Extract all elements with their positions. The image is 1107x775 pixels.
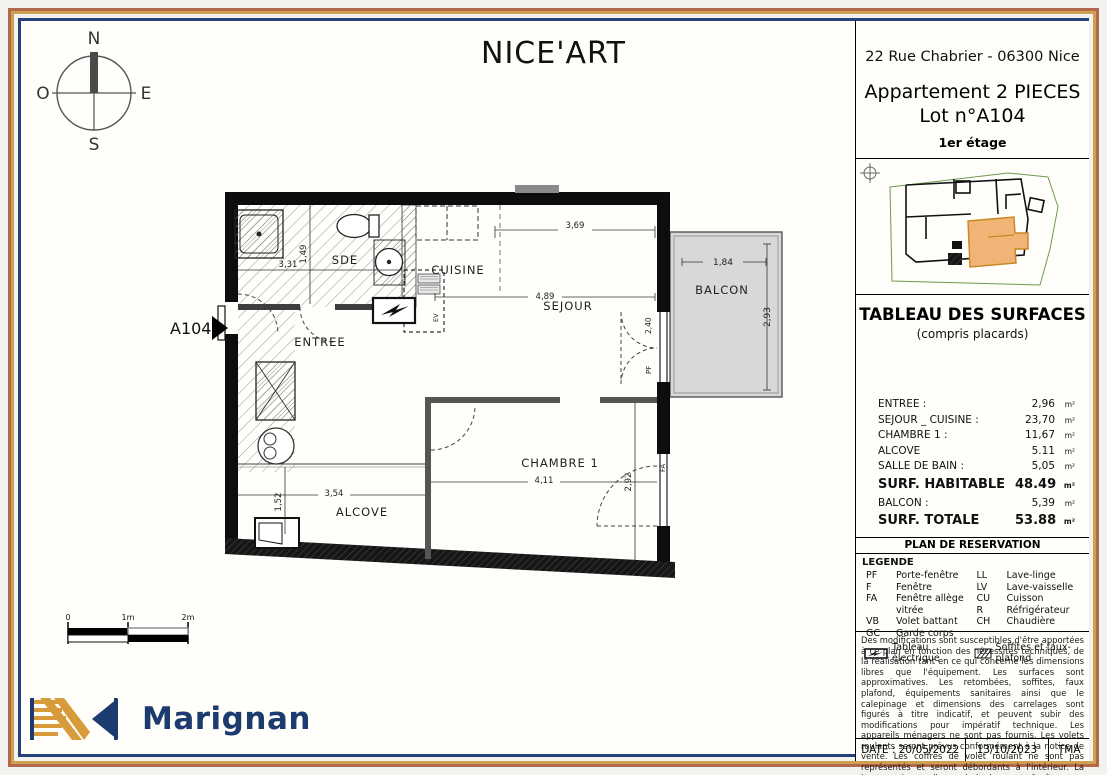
surface-value: 2,96 — [1015, 397, 1055, 413]
surface-value: 5,05 — [1015, 459, 1055, 475]
alcove-niche — [255, 518, 299, 548]
marignan-logo-icon — [30, 690, 130, 748]
legend-abbr: VB — [862, 616, 896, 628]
surface-unit: m² — [1055, 476, 1075, 496]
floor-level: 1er étage — [856, 135, 1089, 150]
electrical-panel-icon — [373, 298, 415, 323]
room-entree-label: ENTREE — [294, 335, 345, 349]
legend-abbr: F — [862, 582, 896, 594]
footer-code: TMA — [1049, 739, 1089, 761]
keyplan-core — [948, 241, 962, 265]
surface-value: 23,70 — [1015, 413, 1055, 429]
legend-abbr: LV — [973, 582, 1007, 594]
dim-sejour-top: 3,69 — [566, 221, 585, 231]
surface-label: BALCON : — [878, 496, 1015, 512]
surface-label: SALLE DE BAIN : — [878, 459, 1015, 475]
surfaces-rows: ENTREE : 2,96 m² SEJOUR _ CUISINE : 23,7… — [878, 397, 1075, 532]
surface-row: CHAMBRE 1 : 11,67 m² — [878, 428, 1075, 444]
tag-fa: FA — [659, 464, 667, 472]
entree-closet — [256, 362, 295, 464]
surface-value: 53.88 — [1015, 511, 1055, 531]
scale-bar: 0 1m 2m — [58, 610, 208, 656]
brand-name: Marignan — [142, 701, 311, 737]
surface-unit: m² — [1055, 397, 1075, 413]
surface-label: SURF. TOTALE — [878, 511, 1015, 531]
legend-grid: PFPorte-fenêtre FFenêtre FAFenêtre allèg… — [862, 570, 1083, 639]
floor-plan: 1,84 BALCON 2,93 PF 2,40 — [170, 182, 810, 602]
legend-abbr: LL — [973, 570, 1007, 582]
disclaimer-text: Des modifications sont susceptibles d'êt… — [856, 632, 1089, 739]
footer-date: DATE : 20/05/2022 — [856, 739, 966, 761]
legend-abbr: CU — [973, 593, 1007, 605]
surface-row: ALCOVE 5.11 m² — [878, 444, 1075, 460]
dim-chambre-depth: 2,92 — [624, 473, 634, 492]
surface-unit: m² — [1055, 496, 1075, 512]
balcony: 1,84 BALCON 2,93 — [670, 232, 782, 397]
legend-abbr: FA — [862, 593, 896, 616]
project-address: 22 Rue Chabrier - 06300 Nice — [856, 49, 1089, 65]
room-sde-label: SDE — [332, 253, 358, 267]
window-fa-chambre: FA — [658, 454, 669, 526]
dim-balcon-depth: 2,93 — [763, 307, 773, 327]
surface-row-totale: SURF. TOTALE 53.88 m² — [878, 511, 1075, 532]
washbasin — [374, 240, 405, 285]
reservation-bar: PLAN DE RESERVATION — [856, 538, 1089, 554]
surface-unit: m² — [1055, 512, 1075, 532]
surface-row: ENTREE : 2,96 m² — [878, 397, 1075, 413]
scale-0-label: 0 — [65, 613, 70, 622]
address-panel: 22 Rue Chabrier - 06300 Nice Appartement… — [856, 21, 1089, 159]
unit-entrance: A104 — [170, 306, 228, 340]
surfaces-subtitle: (compris placards) — [856, 327, 1089, 341]
legend-abbr: R — [973, 605, 1007, 617]
legend-panel: LEGENDE PFPorte-fenêtre FFenêtre FAFenêt… — [856, 554, 1089, 632]
plan-sheet: N S E O NICE'ART 1,84 — [0, 0, 1107, 775]
legend-abbr: PF — [862, 570, 896, 582]
room-balcon-label: BALCON — [695, 283, 749, 297]
surface-row: BALCON : 5,39 m² — [878, 496, 1075, 512]
room-cuisine-label: CUISINE — [431, 263, 484, 277]
dim-alcove-width: 3,54 — [325, 489, 344, 499]
toilet — [337, 215, 379, 238]
surface-value: 11,67 — [1015, 428, 1055, 444]
door-swings — [238, 294, 657, 526]
apartment-type: Appartement 2 PIECES — [856, 81, 1089, 103]
legend-name: Volet battant — [896, 616, 973, 628]
surface-label: ALCOVE — [878, 444, 1015, 460]
surface-value: 5.11 — [1015, 444, 1055, 460]
legend-name: Fenêtre allège vitrée — [896, 593, 973, 616]
surface-row: SALLE DE BAIN : 5,05 m² — [878, 459, 1075, 475]
surface-row-habitable: SURF. HABITABLE 48.49 m² — [878, 475, 1075, 496]
legend-name: Réfrigérateur — [1007, 605, 1084, 617]
surface-unit: m² — [1055, 444, 1075, 460]
compass-e-label: E — [141, 84, 152, 104]
boiler — [258, 428, 294, 464]
legend-abbr: CH — [973, 616, 1007, 628]
tag-pf: PF — [645, 366, 653, 374]
tag-ev: EV — [432, 313, 440, 322]
keyplan-compass-icon — [860, 163, 880, 183]
scale-2m-label: 2m — [182, 613, 195, 622]
surfaces-panel: TABLEAU DES SURFACES (compris placards) … — [856, 295, 1089, 538]
highlighted-unit — [968, 217, 1028, 267]
legend-name: Lave-linge — [1007, 570, 1084, 582]
surface-unit: m² — [1055, 428, 1075, 444]
scale-1m-label: 1m — [122, 613, 135, 622]
surface-label: CHAMBRE 1 : — [878, 428, 1015, 444]
surface-label: ENTREE : — [878, 397, 1015, 413]
unit-label: A104 — [170, 319, 211, 338]
footer-revision-date: 13/10/2023 — [966, 739, 1050, 761]
brand-logo: Marignan — [30, 690, 311, 748]
compass-o-label: O — [36, 84, 49, 104]
legend-name: Fenêtre — [896, 582, 973, 594]
surfaces-title: TABLEAU DES SURFACES — [856, 305, 1089, 324]
legend-name: Porte-fenêtre — [896, 570, 973, 582]
dim-sde-depth: 1,49 — [299, 245, 309, 264]
compass-s-label: S — [89, 135, 100, 153]
dim-alcove-depth: 1,52 — [274, 493, 284, 512]
surface-value: 48.49 — [1015, 475, 1055, 495]
keyplan-panel — [856, 159, 1089, 295]
room-chambre-label: CHAMBRE 1 — [521, 456, 599, 470]
room-alcove-label: ALCOVE — [336, 505, 388, 519]
legend-name: Lave-vaisselle — [1007, 582, 1084, 594]
dim-window-sejour: 2,40 — [644, 317, 653, 334]
legend-title: LEGENDE — [862, 557, 1083, 568]
legend-name: Chaudière — [1007, 616, 1084, 628]
surface-value: 5,39 — [1015, 496, 1055, 512]
room-sejour-label: SEJOUR — [543, 299, 592, 313]
dim-chambre-width: 4,11 — [535, 476, 554, 486]
lot-number: Lot n°A104 — [856, 105, 1089, 127]
surface-unit: m² — [1055, 413, 1075, 429]
window-pf-sejour: PF 2,40 — [644, 312, 669, 382]
dim-balcon-width: 1,84 — [713, 258, 733, 268]
title-block-column: 22 Rue Chabrier - 06300 Nice Appartement… — [855, 21, 1089, 761]
footer-row: DATE : 20/05/2022 13/10/2023 TMA — [856, 739, 1089, 761]
surface-label: SURF. HABITABLE — [878, 475, 1015, 495]
surface-label: SEJOUR _ CUISINE : — [878, 413, 1015, 429]
keyplan-map — [856, 159, 1086, 293]
dim-sde-width: 3,31 — [279, 260, 298, 270]
surface-unit: m² — [1055, 459, 1075, 475]
surface-row: SEJOUR _ CUISINE : 23,70 m² — [878, 413, 1075, 429]
legend-name: Cuisson — [1007, 593, 1084, 605]
